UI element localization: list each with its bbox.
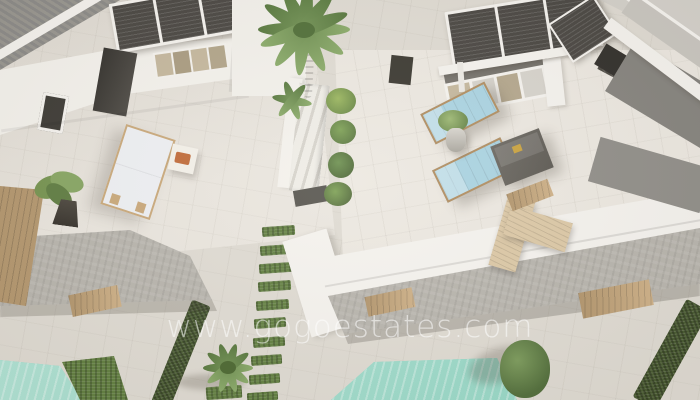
aerial-villa-render: www.gogoestates.com (0, 0, 700, 400)
watermark-text: www.gogoestates.com (0, 309, 700, 345)
